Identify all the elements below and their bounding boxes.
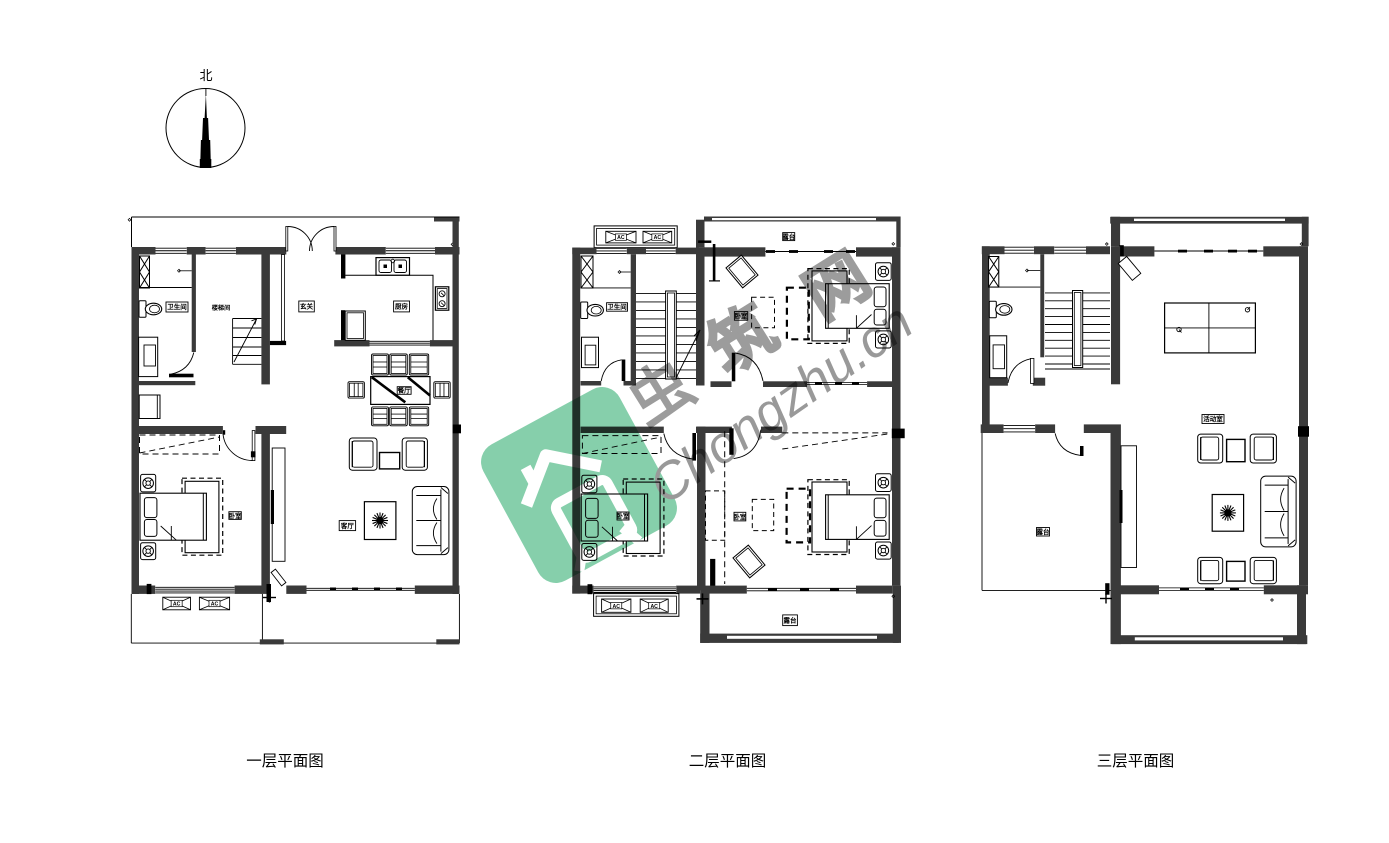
svg-text:露台: 露台 — [782, 232, 795, 241]
svg-text:露台: 露台 — [784, 615, 798, 624]
svg-text:二层平面图: 二层平面图 — [689, 753, 767, 770]
svg-text:卫生间: 卫生间 — [607, 302, 627, 311]
svg-text:客厅: 客厅 — [340, 521, 355, 530]
svg-text:楼梯间: 楼梯间 — [212, 304, 231, 312]
svg-text:活动室: 活动室 — [1203, 414, 1223, 423]
svg-text:北: 北 — [199, 68, 212, 83]
svg-text:卧室: 卧室 — [229, 511, 243, 520]
svg-text:玄关: 玄关 — [300, 302, 314, 311]
svg-text:三层平面图: 三层平面图 — [1097, 753, 1175, 770]
svg-text:AC: AC — [613, 604, 621, 610]
svg-text:露台: 露台 — [1037, 527, 1051, 536]
svg-text:AC: AC — [654, 235, 662, 241]
svg-text:餐厅: 餐厅 — [397, 386, 412, 395]
svg-text:AC: AC — [617, 235, 625, 241]
svg-text:卧室: 卧室 — [734, 512, 747, 521]
svg-text:AC: AC — [211, 602, 219, 608]
svg-text:一层平面图: 一层平面图 — [246, 753, 324, 770]
svg-text:AC: AC — [173, 602, 181, 608]
svg-text:AC: AC — [650, 604, 658, 610]
svg-text:卫生间: 卫生间 — [167, 302, 187, 311]
svg-text:厨房: 厨房 — [395, 302, 409, 311]
